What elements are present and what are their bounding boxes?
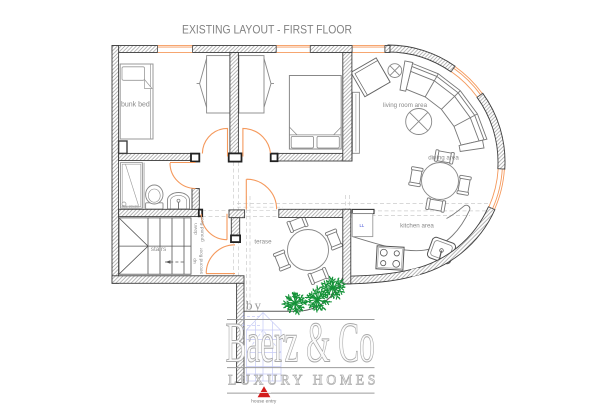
svg-text:down: down <box>193 223 199 235</box>
svg-text:LL: LL <box>360 223 365 228</box>
svg-text:EXISTING LAYOUT - FIRST FLOOR: EXISTING LAYOUT - FIRST FLOOR <box>182 23 352 37</box>
svg-text:kitchen area: kitchen area <box>400 223 434 230</box>
svg-text:dining area: dining area <box>428 155 459 162</box>
svg-text:ground floor: ground floor <box>200 216 206 242</box>
svg-text:terase: terase <box>254 239 272 246</box>
svg-text:Baerz & Co: Baerz & Co <box>226 311 375 374</box>
svg-text:house entry: house entry <box>251 398 277 404</box>
svg-text:bunk bed: bunk bed <box>121 102 150 109</box>
svg-text:up: up <box>193 258 198 264</box>
svg-text:dus 90x90: dus 90x90 <box>122 205 140 209</box>
svg-text:second floor: second floor <box>199 248 205 275</box>
svg-text:LUXURY HOMES: LUXURY HOMES <box>228 373 379 389</box>
svg-text:stairs: stairs <box>151 246 167 253</box>
svg-text:living room area: living room area <box>383 102 428 109</box>
